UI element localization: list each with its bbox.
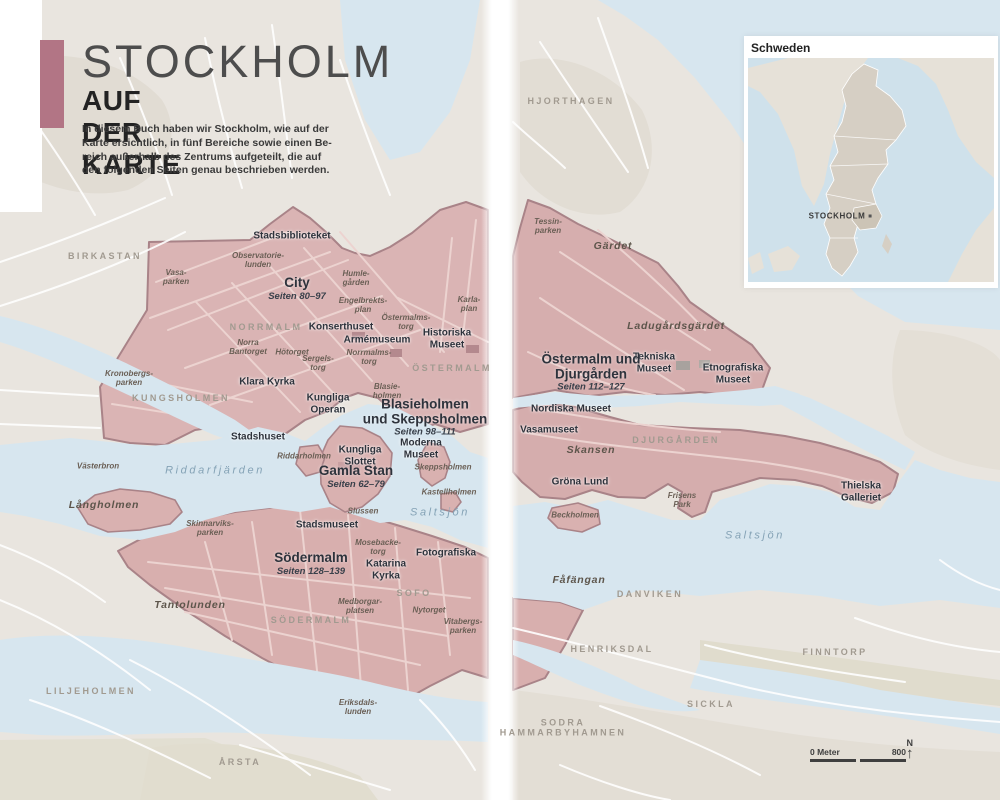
area-label: CitySeiten 80–97 [268, 276, 326, 303]
map-label: Observatorie- lunden [232, 251, 284, 269]
area-name: City [268, 276, 326, 291]
map-label: KUNGSHOLMEN [132, 393, 230, 403]
map-label: Kungliga Operan [307, 393, 350, 416]
map-label: Norrmalms- torg [347, 348, 392, 366]
map-label: Riddarfjärden [165, 465, 265, 478]
scale-bar: 0 Meter 800 [810, 747, 906, 762]
map-label: Stadsmuseet [296, 519, 358, 531]
map-label: Nordiska Museet [531, 403, 611, 415]
intro-text: In diesem Buch haben wir Stockholm, wie … [82, 123, 344, 178]
map-label: BIRKASTAN [68, 251, 142, 261]
map-label: Mosebacke- torg [355, 538, 401, 556]
area-pages: Seiten 128–139 [274, 566, 348, 577]
map-label: Humle- gården [342, 269, 369, 287]
map-label: Moderna Museet [400, 438, 442, 461]
scale-left-label: 0 Meter [810, 747, 840, 757]
map-label: Etnografiska Museet [703, 363, 764, 386]
inset-map-art [748, 58, 994, 282]
area-label: Blasieholmen und SkeppsholmenSeiten 98–1… [363, 397, 488, 438]
map-label: ÅRSTA [219, 757, 261, 767]
scale-segment [810, 759, 856, 762]
map-label: Slussen [348, 506, 379, 515]
map-label: Stadsbiblioteket [253, 230, 330, 242]
map-label: Ladugårdsgärdet [627, 320, 725, 332]
map-label: Eriksdals- lunden [339, 698, 377, 716]
map-label: Medborgar- platsen [338, 597, 382, 615]
map-label: Frisens Park [668, 491, 696, 509]
map-label: SODRA HAMMARBYHAMNEN [500, 718, 627, 739]
map-label: Vasamuseet [520, 424, 578, 436]
map-label: Vasa- parken [163, 268, 189, 286]
map-label: FINNTORP [802, 647, 867, 657]
map-label: DANVIKEN [617, 589, 683, 599]
map-label: Vitabergs- parken [444, 617, 483, 635]
scale-right-label: 800 [892, 747, 906, 757]
north-indicator: N ↑ [906, 738, 914, 760]
map-label: Saltsjön [725, 530, 785, 543]
area-pages: Seiten 98–111 [363, 428, 488, 439]
area-name: Blasieholmen und Skeppsholmen [363, 397, 488, 426]
area-name: Östermalm und Djurgården [541, 352, 640, 381]
map-label: Katarina Kyrka [366, 559, 406, 582]
scale-bar-line [810, 759, 906, 762]
map-label: SOFO [396, 588, 431, 598]
map-label: HJORTHAGEN [527, 96, 614, 106]
map-label: Gärdet [594, 240, 633, 252]
area-pages: Seiten 80–97 [268, 291, 326, 302]
map-label: Armémuseum [344, 334, 411, 346]
map-label: NORRMALM [230, 322, 303, 332]
map-label: LILJEHOLMEN [46, 686, 136, 696]
map-label: Fotografiska [416, 547, 476, 559]
map-label: Sergels- torg [302, 354, 334, 372]
city-dot-icon [868, 215, 871, 218]
map-label: Tessin- parken [534, 217, 562, 235]
book-spread: BIRKASTANVasa- parkenObservatorie- lunde… [0, 0, 1000, 800]
map-label: Tantolunden [154, 599, 225, 611]
map-label: Skinnarviks- parken [186, 519, 234, 537]
map-label: Engelbrekts- plan [339, 296, 387, 314]
map-label: SÖDERMALM [271, 615, 352, 625]
map-label: DJURGÅRDEN [632, 435, 720, 445]
area-pages: Seiten 62–79 [319, 479, 393, 490]
area-name: Södermalm [274, 551, 348, 566]
map-label: Riddarholmen [277, 451, 331, 460]
accent-bar [40, 40, 64, 128]
map-label: SICKLA [687, 699, 735, 709]
scale-segment [860, 759, 906, 762]
map-label: Norra Bantorget [229, 338, 267, 356]
inset-map: STOCKHOLM [748, 58, 994, 282]
area-label: Östermalm und DjurgårdenSeiten 112–127 [541, 352, 640, 393]
map-label: Klara Kyrka [239, 376, 295, 388]
north-arrow-icon: ↑ [906, 748, 914, 760]
map-label: Kronobergs- parken [105, 369, 153, 387]
map-label: Stadshuset [231, 431, 285, 443]
area-name: Gamla Stan [319, 464, 393, 479]
area-label: SödermalmSeiten 128–139 [274, 551, 348, 578]
map-label: Saltsjön [410, 507, 470, 520]
sweden-inset: Schweden STOCKHOLM [744, 36, 998, 288]
map-label: Kastellholmen [422, 487, 477, 496]
map-label: ÖSTERMALM [412, 363, 492, 373]
map-label: Karla- plan [458, 295, 481, 313]
map-label: Skansen [567, 444, 616, 456]
map-label: Fåfängan [552, 574, 605, 586]
map-label: Skeppsholmen [415, 462, 472, 471]
map-label: Västerbron [77, 461, 119, 470]
area-label: Gamla StanSeiten 62–79 [319, 464, 393, 491]
area-pages: Seiten 112–127 [541, 383, 640, 394]
map-label: Beckholmen [551, 510, 599, 519]
map-label: Långholmen [69, 499, 139, 511]
map-label: Nytorget [413, 605, 446, 614]
inset-city-label: STOCKHOLM [809, 212, 872, 221]
map-label: HENRIKSDAL [570, 644, 653, 654]
map-label: Konserthuset [309, 321, 373, 333]
page-title: STOCKHOLM [82, 36, 393, 88]
map-label: Historiska Museet [423, 328, 471, 351]
map-label: Thielska Galleriet [841, 481, 881, 504]
map-label: Gröna Lund [552, 476, 609, 488]
inset-title: Schweden [751, 41, 998, 55]
